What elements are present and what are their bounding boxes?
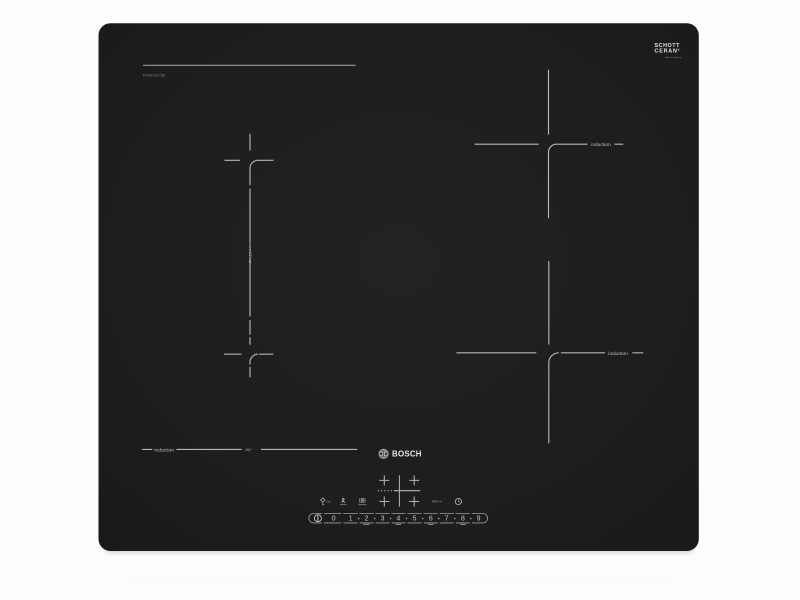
svg-text:induction: induction (608, 351, 628, 356)
svg-text:9: 9 (477, 516, 481, 523)
svg-text:Made in Germany: Made in Germany (666, 57, 682, 59)
svg-text:5: 5 (413, 516, 417, 523)
svg-text:6: 6 (429, 516, 433, 523)
svg-text:On: On (326, 500, 331, 504)
svg-text:0: 0 (332, 516, 336, 523)
svg-text:BOSCH: BOSCH (392, 450, 422, 459)
svg-text:1: 1 (349, 516, 353, 523)
svg-text:induction: induction (154, 447, 174, 452)
svg-text:ιΘƒ~: ιΘƒ~ (246, 448, 254, 452)
svg-text:induction: induction (591, 142, 611, 147)
svg-text:PVS611FC5E: PVS611FC5E (143, 74, 166, 78)
svg-text:2: 2 (365, 516, 369, 523)
svg-text:CERAN®: CERAN® (655, 48, 681, 55)
svg-text:3: 3 (381, 516, 385, 523)
svg-text:4: 4 (396, 516, 400, 523)
svg-text:combiZone: combiZone (248, 245, 252, 263)
svg-text:min: min (432, 500, 438, 504)
svg-text:7: 7 (445, 516, 449, 523)
svg-text:8: 8 (461, 516, 465, 523)
